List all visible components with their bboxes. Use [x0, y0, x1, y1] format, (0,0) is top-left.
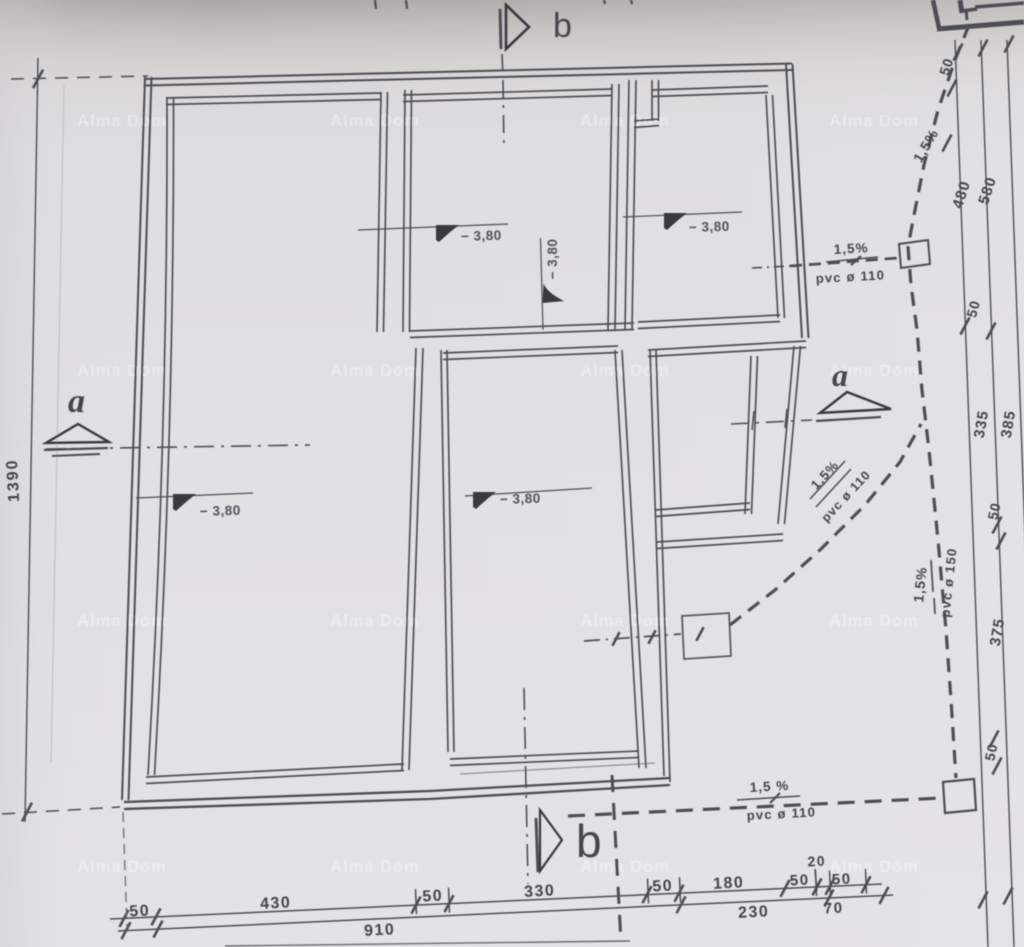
svg-text:Alma Dom: Alma Dom [77, 112, 167, 130]
svg-text:1,5 %: 1,5 % [749, 778, 789, 795]
svg-text:20: 20 [807, 853, 826, 870]
svg-text:− 3,80: − 3,80 [200, 503, 241, 519]
svg-text:b: b [576, 815, 602, 867]
svg-text:50: 50 [652, 877, 674, 895]
svg-text:Alma Dom: Alma Dom [77, 858, 167, 876]
svg-text:180: 180 [713, 874, 745, 893]
svg-text:b: b [553, 7, 572, 45]
svg-text:Alma Dom: Alma Dom [580, 112, 670, 130]
svg-text:a: a [832, 357, 848, 393]
svg-text:− 3,80: − 3,80 [500, 491, 541, 507]
svg-text:Alma Dom: Alma Dom [77, 612, 167, 630]
svg-text:910: 910 [364, 921, 396, 940]
svg-text:Alma Dom: Alma Dom [580, 612, 670, 630]
svg-text:230: 230 [738, 903, 770, 922]
svg-text:Alma Dom: Alma Dom [330, 858, 420, 876]
svg-text:− 3,80: − 3,80 [545, 239, 560, 280]
svg-text:50: 50 [422, 887, 444, 905]
svg-text:Alma Dom: Alma Dom [330, 362, 420, 380]
svg-text:Alma Dom: Alma Dom [330, 112, 420, 130]
svg-text:330: 330 [524, 882, 556, 901]
svg-text:Alma Dom: Alma Dom [829, 612, 919, 630]
svg-text:Alma Dom: Alma Dom [829, 112, 919, 130]
svg-text:70: 70 [823, 900, 844, 918]
svg-text:a: a [68, 383, 85, 420]
svg-text:− 3,80: − 3,80 [689, 219, 730, 235]
svg-text:Alma Dom: Alma Dom [77, 362, 167, 380]
svg-text:1390: 1390 [4, 458, 23, 502]
svg-text:− 3,80: − 3,80 [461, 228, 502, 244]
svg-text:430: 430 [260, 894, 292, 913]
svg-text:50: 50 [129, 902, 151, 920]
svg-text:1,5%: 1,5% [833, 240, 869, 257]
svg-text:50: 50 [831, 871, 852, 889]
svg-text:50: 50 [789, 872, 810, 890]
